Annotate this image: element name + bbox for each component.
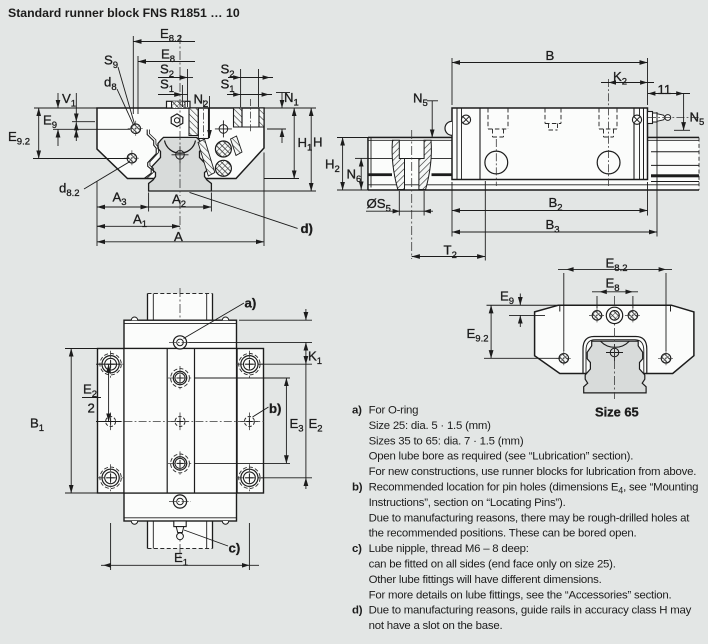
svg-text:a): a) [245,296,257,311]
svg-text:For new constructions, use run: For new constructions, use runner blocks… [369,466,697,478]
svg-text:the recommended positions. The: the recommended positions. These can be … [369,528,637,540]
svg-text:Recommended location for pin h: Recommended location for pin holes (dime… [369,482,699,496]
svg-text:b): b) [352,482,363,494]
svg-text:2: 2 [88,401,95,416]
svg-text:b): b) [269,401,281,416]
svg-text:Size 65: Size 65 [595,405,639,420]
svg-text:For O-ring: For O-ring [369,405,419,417]
svg-text:not have a slot on the base.: not have a slot on the base. [369,620,503,632]
svg-text:Open lube bore as required (se: Open lube bore as required (see “Lubrica… [369,451,634,463]
svg-text:c): c) [352,543,362,555]
svg-text:Size 25: dia. 5 · 1.5 (mm): Size 25: dia. 5 · 1.5 (mm) [369,420,492,432]
svg-text:Due to manufacturing reasons,: Due to manufacturing reasons, guide rail… [369,605,692,617]
svg-text:Instructions”, section on “Loc: Instructions”, section on “Locating Pins… [369,497,566,509]
svg-text:B: B [546,48,555,63]
svg-text:Sizes 35 to 65: dia. 7 · 1.5 (: Sizes 35 to 65: dia. 7 · 1.5 (mm) [369,435,524,447]
svg-text:11: 11 [658,82,672,97]
svg-text:c): c) [229,541,241,556]
svg-text:For more details on lube fitti: For more details on lube fittings, see t… [369,589,672,601]
svg-text:Standard runner block FNS R185: Standard runner block FNS R1851 … 10 [8,6,240,20]
svg-text:Due to manufacturing reasons,: Due to manufacturing reasons, there may … [369,512,691,524]
svg-text:Other lube fittings will have: Other lube fittings will have different … [369,574,602,586]
svg-text:can be fitted on all sides (en: can be fitted on all sides (end face onl… [369,559,616,571]
svg-text:a): a) [352,405,362,417]
svg-text:d): d) [301,221,313,236]
svg-text:Lube nipple, thread M6 – 8 dee: Lube nipple, thread M6 – 8 deep: [369,543,529,555]
svg-text:d): d) [352,605,363,617]
svg-text:A: A [174,229,183,244]
svg-text:H: H [313,135,323,150]
